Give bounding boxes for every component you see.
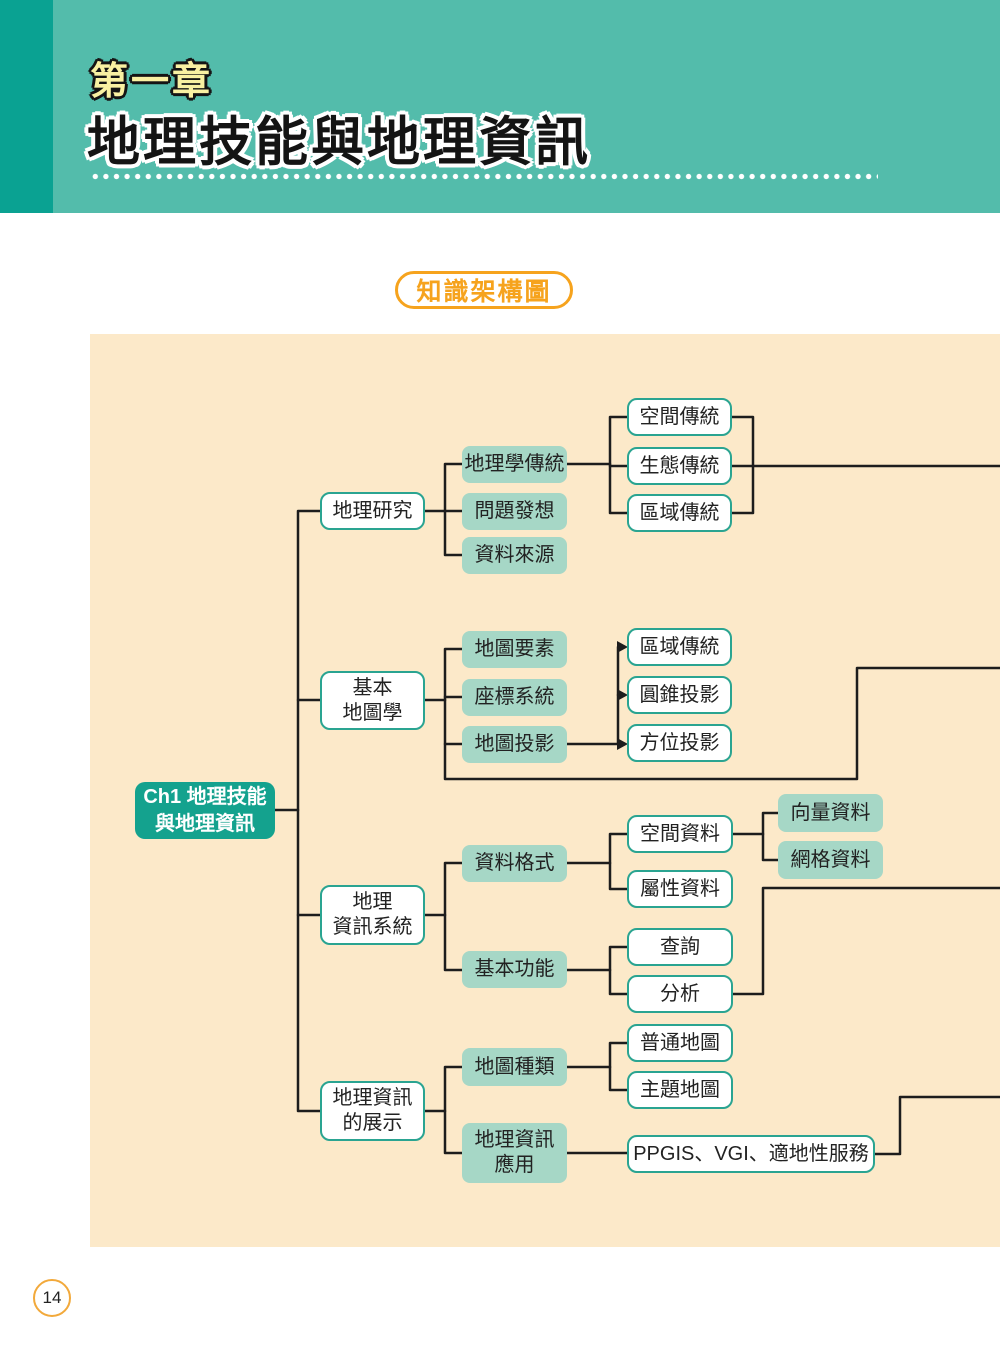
node-azimuthal-projection: 方位投影	[627, 724, 732, 762]
node-ecological-tradition: 生態傳統	[627, 447, 732, 485]
node-spatial-tradition: 空間傳統	[627, 398, 732, 436]
node-vector-data: 向量資料	[778, 794, 883, 832]
node-analysis: 分析	[627, 975, 733, 1013]
node-data-sources: 資料來源	[462, 537, 567, 574]
page-title: 地理技能與地理資訊	[87, 100, 591, 176]
node-conic-projection: 圓錐投影	[627, 676, 732, 714]
node-gis: 地理 資訊系統	[320, 885, 425, 945]
node-geography-traditions: 地理學傳統	[462, 446, 567, 483]
node-map-projection: 地圖投影	[462, 726, 567, 763]
node-problem-ideation: 問題發想	[462, 493, 567, 530]
page-number: 14	[33, 1279, 71, 1317]
node-root-ch1: Ch1 地理技能 與地理資訊	[135, 782, 275, 839]
node-geo-info-application: 地理資訊 應用	[462, 1123, 567, 1183]
node-coordinate-systems: 座標系統	[462, 679, 567, 716]
node-map-elements: 地圖要素	[462, 631, 567, 668]
node-data-format: 資料格式	[462, 845, 567, 882]
node-geo-info-display: 地理資訊 的展示	[320, 1081, 425, 1141]
node-query: 查詢	[627, 928, 733, 966]
node-basic-functions: 基本功能	[462, 951, 567, 988]
header-band: 第一章 地理技能與地理資訊	[0, 0, 1000, 213]
node-general-map: 普通地圖	[627, 1024, 733, 1062]
node-regional-tradition-2: 區域傳統	[627, 628, 732, 666]
node-basic-cartography: 基本 地圖學	[320, 671, 425, 730]
node-geo-research: 地理研究	[320, 492, 425, 530]
node-thematic-map: 主題地圖	[627, 1071, 733, 1109]
chapter-label: 第一章	[90, 50, 213, 105]
knowledge-map-badge: 知識架構圖	[395, 271, 573, 309]
node-map-types: 地圖種類	[462, 1048, 567, 1086]
node-ppgis-vgi-lbs: PPGIS、VGI、適地性服務	[627, 1135, 875, 1173]
textbook-page: 第一章 地理技能與地理資訊 知識架構圖	[0, 0, 1000, 1353]
dotted-divider	[90, 173, 878, 180]
node-attribute-data: 屬性資料	[627, 870, 733, 908]
node-spatial-data: 空間資料	[627, 815, 733, 853]
header-accent-strip	[0, 0, 53, 213]
node-raster-data: 網格資料	[778, 841, 883, 879]
node-regional-tradition: 區域傳統	[627, 494, 732, 532]
